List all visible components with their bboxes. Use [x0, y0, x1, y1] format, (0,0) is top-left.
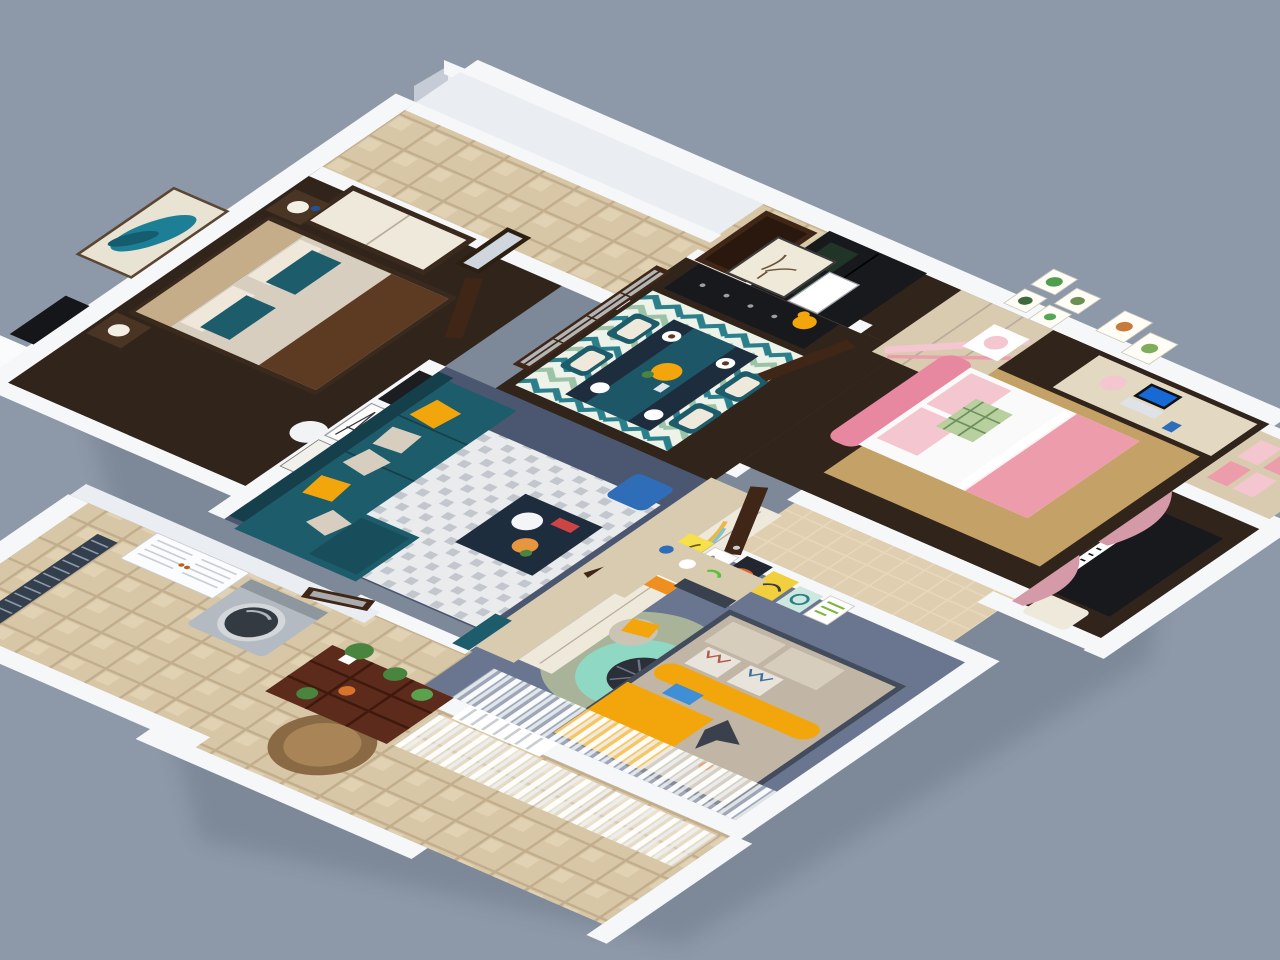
floorplan-3d-render	[0, 0, 1280, 960]
screenshot-root	[0, 0, 1280, 960]
